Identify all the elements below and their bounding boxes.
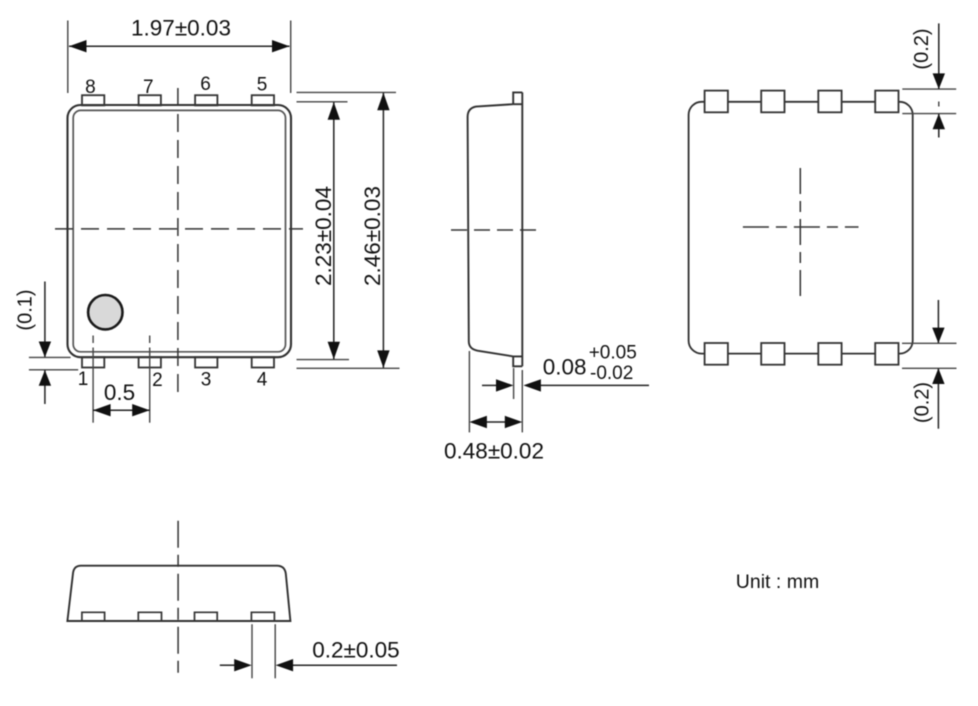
svg-text:1: 1 bbox=[78, 369, 89, 390]
svg-text:-0.02: -0.02 bbox=[590, 363, 633, 384]
svg-text:2: 2 bbox=[152, 370, 163, 391]
svg-text:Unit : mm: Unit : mm bbox=[736, 571, 819, 593]
svg-text:(0.2): (0.2) bbox=[911, 28, 933, 69]
svg-text:1.97±0.03: 1.97±0.03 bbox=[131, 15, 231, 40]
svg-text:2.46±0.03: 2.46±0.03 bbox=[360, 186, 385, 286]
svg-text:0.08: 0.08 bbox=[543, 355, 587, 380]
svg-text:4: 4 bbox=[257, 370, 268, 391]
svg-text:+0.05: +0.05 bbox=[589, 343, 637, 364]
svg-text:2.23±0.04: 2.23±0.04 bbox=[311, 186, 336, 286]
svg-text:0.5: 0.5 bbox=[104, 380, 135, 405]
svg-text:0.2±0.05: 0.2±0.05 bbox=[312, 638, 399, 663]
svg-text:0.48±0.02: 0.48±0.02 bbox=[444, 438, 544, 463]
svg-text:(0.2): (0.2) bbox=[912, 382, 934, 423]
svg-text:(0.1): (0.1) bbox=[15, 289, 37, 330]
svg-text:6: 6 bbox=[200, 74, 211, 95]
svg-text:7: 7 bbox=[143, 77, 154, 98]
svg-text:8: 8 bbox=[85, 77, 96, 98]
svg-text:5: 5 bbox=[257, 74, 268, 95]
svg-text:3: 3 bbox=[201, 370, 212, 391]
